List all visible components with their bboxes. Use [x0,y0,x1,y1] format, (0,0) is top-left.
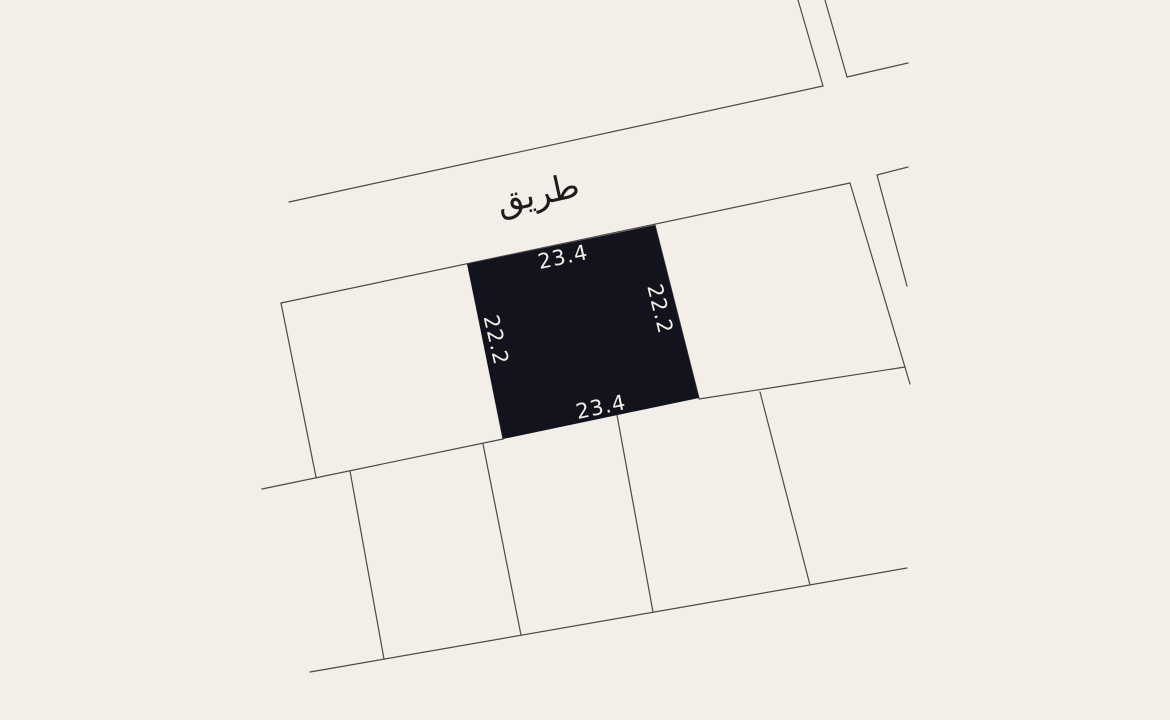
parcel-map: طريق 23.4 22.2 23.4 22.2 [0,0,1170,720]
